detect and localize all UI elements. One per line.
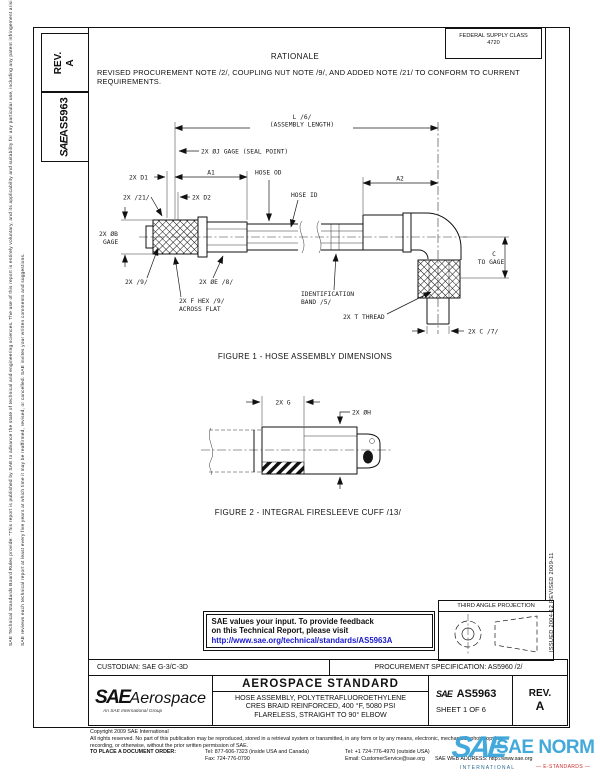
title-block-main: SAEAerospace An SAE International Group …	[88, 676, 568, 726]
dim-label-c7: 2X C /7/	[468, 329, 499, 336]
third-angle-projection-box: THIRD ANGLE PROJECTION	[438, 600, 554, 661]
tel-outside: Tel: +1 724-776-4970 (outside USA)	[345, 749, 435, 756]
document-title-line3: FLARELESS, STRAIGHT TO 90° ELBOW	[213, 711, 428, 719]
brand-name: Aerospace	[130, 690, 207, 707]
rev-label: REV.	[529, 688, 551, 699]
dim-label-gage-seal: 2X ØJ GAGE (SEAL POINT)	[201, 148, 288, 156]
rev-value: A	[536, 699, 545, 713]
dim-label-dia-e: 2X ØE /8/	[199, 278, 233, 286]
doc-number: AS5963	[457, 688, 497, 700]
dim-label-c: C	[492, 251, 496, 258]
sae-norm-watermark: SAE SAE NORM INTERNATIONAL — E-STANDARDS…	[452, 731, 600, 776]
dim-label-hose-id: HOSE ID	[291, 192, 318, 199]
dim-label-g: 2X G	[275, 400, 290, 407]
dim-label-hose-od: HOSE OD	[255, 170, 282, 177]
watermark-subtitle-right: — E-STANDARDS —	[536, 764, 590, 770]
figure2-dimension-labels: 2X G 2X ØH	[275, 400, 371, 417]
projection-title: THIRD ANGLE PROJECTION	[439, 601, 553, 612]
dim-label-to-gage: TO GAGE	[478, 259, 505, 266]
figure2-caption: FIGURE 2 - INTEGRAL FIRESLEEVE CUFF /13/	[90, 508, 526, 517]
title-block-row1: CUSTODIAN: SAE G-3/C-3D PROCUREMENT SPEC…	[88, 659, 568, 676]
sae-aerospace-logo: SAEAerospace An SAE International Group	[89, 676, 213, 725]
third-angle-projection-symbol	[439, 612, 551, 655]
sidebar-doc-number: AS5963	[59, 97, 71, 137]
rationale-body: REVISED PROCUREMENT NOTE /2/, COUPLING N…	[97, 68, 525, 86]
dim-label-hex1: 2X F HEX /9/	[179, 298, 225, 305]
dim-label-d2: 2X D2	[192, 195, 211, 202]
procurement-spec-cell: PROCUREMENT SPECIFICATION: AS5960 /2/	[330, 660, 567, 675]
dim-label-note9: 2X /9/	[125, 279, 148, 286]
tel-inside: Tel: 877-606-7323 (inside USA and Canada…	[205, 749, 345, 756]
margin-disclaimer-primary: SAE Technical Standards Board Rules prov…	[9, 94, 14, 646]
dim-label-d1: 2X D1	[129, 175, 148, 182]
fsc-code: 4720	[446, 40, 541, 47]
figure1-caption: FIGURE 1 - HOSE ASSEMBLY DIMENSIONS	[90, 352, 520, 361]
dim-label-gage-b2: GAGE	[103, 239, 118, 246]
brand-sae-mark: SAE	[95, 687, 130, 708]
custodian-cell: CUSTODIAN: SAE G-3/C-3D	[89, 660, 330, 675]
dim-label-length-code: L /6/	[293, 114, 312, 121]
watermark-subtitle-left: INTERNATIONAL	[460, 765, 515, 771]
figure2-firesleeve-drawing: 2X G 2X ØH	[195, 386, 465, 504]
dim-label-a2: A2	[396, 176, 404, 183]
dim-label-dia-h: 2X ØH	[352, 409, 371, 417]
rationale-heading: RATIONALE	[60, 52, 530, 61]
brand-tagline: An SAE International Group	[89, 709, 162, 714]
standard-heading: AEROSPACE STANDARD	[213, 676, 428, 692]
document-title-line1: HOSE ASSEMBLY, POLYTETRAFLUOROETHYLENE	[213, 694, 428, 702]
dim-label-band2: BAND /5/	[301, 299, 332, 306]
firesleeve-cuff-outline	[209, 427, 380, 475]
sidebar-sae-mark: SAE	[59, 137, 71, 157]
feedback-url-link[interactable]: http://www.sae.org/technical/standards/A…	[212, 636, 427, 646]
doc-sae-mark: SAE	[436, 689, 452, 699]
margin-issued-revised: ISSUED 2004-12 REVISED 2009-11	[549, 387, 555, 652]
document-page: SAE Technical Standards Board Rules prov…	[0, 0, 600, 776]
email-address: Email: CustomerService@sae.org	[345, 756, 435, 763]
order-label: TO PLACE A DOCUMENT ORDER:	[90, 749, 205, 756]
sidebar-docnumber-box: SAEAS5963	[41, 92, 89, 162]
doc-number-cell: SAE AS5963 SHEET 1 OF 6	[429, 676, 513, 725]
dim-label-band1: IDENTIFICATION	[301, 291, 354, 298]
feedback-box: SAE values your input. To provide feedba…	[203, 611, 435, 651]
dim-label-gage-b1: 2X ØB	[99, 230, 118, 238]
watermark-name: SAE NORM	[496, 737, 594, 759]
margin-disclaimer-secondary: SAE reviews each technical report at lea…	[21, 178, 26, 646]
feedback-line1: SAE values your input. To provide feedba…	[212, 617, 427, 627]
rev-cell: REV. A	[513, 676, 567, 725]
dim-label-thread: 2X T THREAD	[343, 314, 385, 321]
dim-label-hex2: ACROSS FLAT	[179, 306, 221, 313]
figure1-hose-assembly-drawing: L /6/ (ASSEMBLY LENGTH) 2X ØJ GAGE (SEAL…	[95, 108, 545, 348]
right-margin-rule	[545, 27, 546, 659]
fsc-title: FEDERAL SUPPLY CLASS	[446, 33, 541, 40]
dim-label-a1: A1	[207, 170, 215, 177]
dim-label-length-name: (ASSEMBLY LENGTH)	[270, 122, 334, 129]
dim-label-note21: 2X /21/	[123, 195, 150, 202]
sidebar-rev-box: REV. A	[41, 33, 89, 92]
document-title-line2: CRES BRAID REINFORCED, 400 °F, 5080 PSI	[213, 702, 428, 710]
fax-number: Fax: 724-776-0790	[205, 756, 345, 763]
feedback-line2: on this Technical Report, please visit	[212, 626, 427, 636]
sheet-indicator: SHEET 1 OF 6	[436, 702, 512, 714]
